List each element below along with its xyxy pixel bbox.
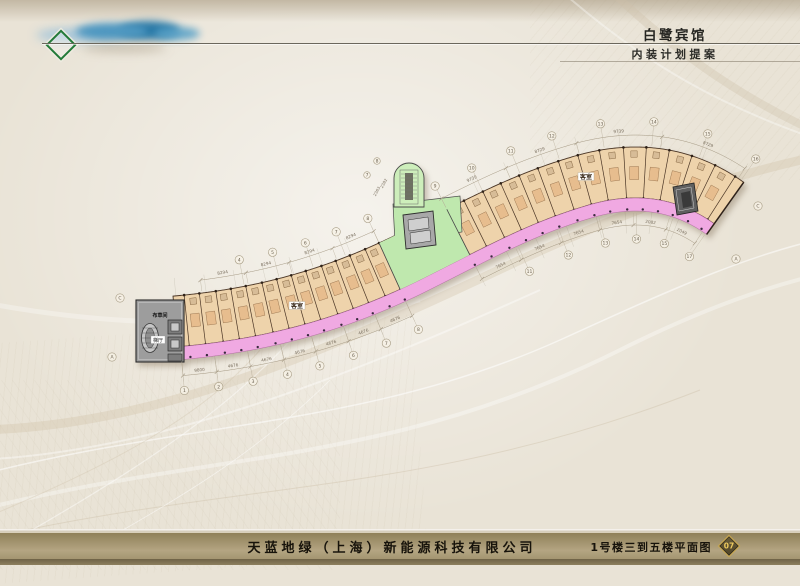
svg-text:14: 14 xyxy=(651,119,657,125)
svg-text:15: 15 xyxy=(661,241,667,247)
svg-text:12: 12 xyxy=(566,253,572,259)
svg-text:9739: 9739 xyxy=(613,128,624,134)
proposal-subtitle: 内装计划提案 xyxy=(632,46,719,62)
svg-text:9: 9 xyxy=(434,184,437,190)
svg-text:2382: 2382 xyxy=(379,177,388,189)
service-block: 布草间梯厅 xyxy=(136,300,184,362)
svg-text:6: 6 xyxy=(304,240,307,246)
floor-plan-canvas: 布草间梯厅客室客室9800467646764676467646764676829… xyxy=(0,0,800,565)
hotel-title: 白鹭宾馆 xyxy=(643,24,707,44)
svg-text:9800: 9800 xyxy=(194,367,205,373)
svg-text:4676: 4676 xyxy=(261,356,273,363)
svg-text:10: 10 xyxy=(469,166,475,172)
svg-text:11: 11 xyxy=(508,148,514,154)
svg-text:C: C xyxy=(118,296,121,302)
svg-text:8294: 8294 xyxy=(260,260,272,267)
svg-text:16: 16 xyxy=(753,157,759,163)
company-name: 天蓝地绿（上海）新能源科技有限公司 xyxy=(247,537,536,556)
svg-text:2082: 2082 xyxy=(645,219,657,225)
svg-text:2049: 2049 xyxy=(676,227,688,236)
right-elevator-core xyxy=(673,183,698,215)
svg-text:17: 17 xyxy=(687,254,693,260)
stair-hall-label: 梯厅 xyxy=(153,337,163,344)
svg-text:13: 13 xyxy=(598,121,604,127)
svg-text:C: C xyxy=(756,204,759,210)
svg-text:13: 13 xyxy=(603,241,609,247)
svg-text:8294: 8294 xyxy=(217,269,229,276)
svg-text:8294: 8294 xyxy=(304,247,316,255)
svg-text:8: 8 xyxy=(366,216,369,222)
svg-text:6: 6 xyxy=(352,353,355,359)
svg-text:14: 14 xyxy=(634,237,640,243)
svg-text:8: 8 xyxy=(417,327,420,333)
svg-text:7: 7 xyxy=(366,173,369,179)
svg-text:4: 4 xyxy=(286,372,289,378)
svg-text:8729: 8729 xyxy=(534,146,546,154)
svg-text:12: 12 xyxy=(549,134,555,140)
svg-text:11: 11 xyxy=(527,269,533,275)
guest-room-label-left: 客室 xyxy=(290,302,303,310)
drawing-title: 1号楼三到五楼平面图 xyxy=(590,539,712,555)
svg-text:7: 7 xyxy=(335,229,338,235)
guest-room-label-right: 客室 xyxy=(579,173,592,181)
svg-text:5: 5 xyxy=(271,250,274,256)
svg-text:7654: 7654 xyxy=(611,219,623,226)
core-elevators xyxy=(403,211,436,249)
linen-room-label: 布草间 xyxy=(151,312,167,319)
svg-text:5: 5 xyxy=(318,363,321,369)
svg-text:1: 1 xyxy=(183,388,186,394)
presentation-slide: { "header": { "title": "白鹭宾馆", "subtitle… xyxy=(0,0,800,565)
svg-text:4676: 4676 xyxy=(227,362,239,369)
svg-text:7: 7 xyxy=(385,341,388,347)
svg-text:15: 15 xyxy=(705,131,711,137)
page-number: 07 xyxy=(724,542,734,551)
svg-text:2: 2 xyxy=(217,384,220,390)
footer-bottom-strip xyxy=(0,559,800,565)
svg-text:8: 8 xyxy=(376,159,379,165)
svg-text:3: 3 xyxy=(252,379,255,385)
svg-text:4: 4 xyxy=(238,257,241,263)
building-plan: 布草间梯厅客室客室 xyxy=(136,146,744,362)
footer-bar: 天蓝地绿（上海）新能源科技有限公司 1号楼三到五楼平面图 07 xyxy=(0,529,800,565)
